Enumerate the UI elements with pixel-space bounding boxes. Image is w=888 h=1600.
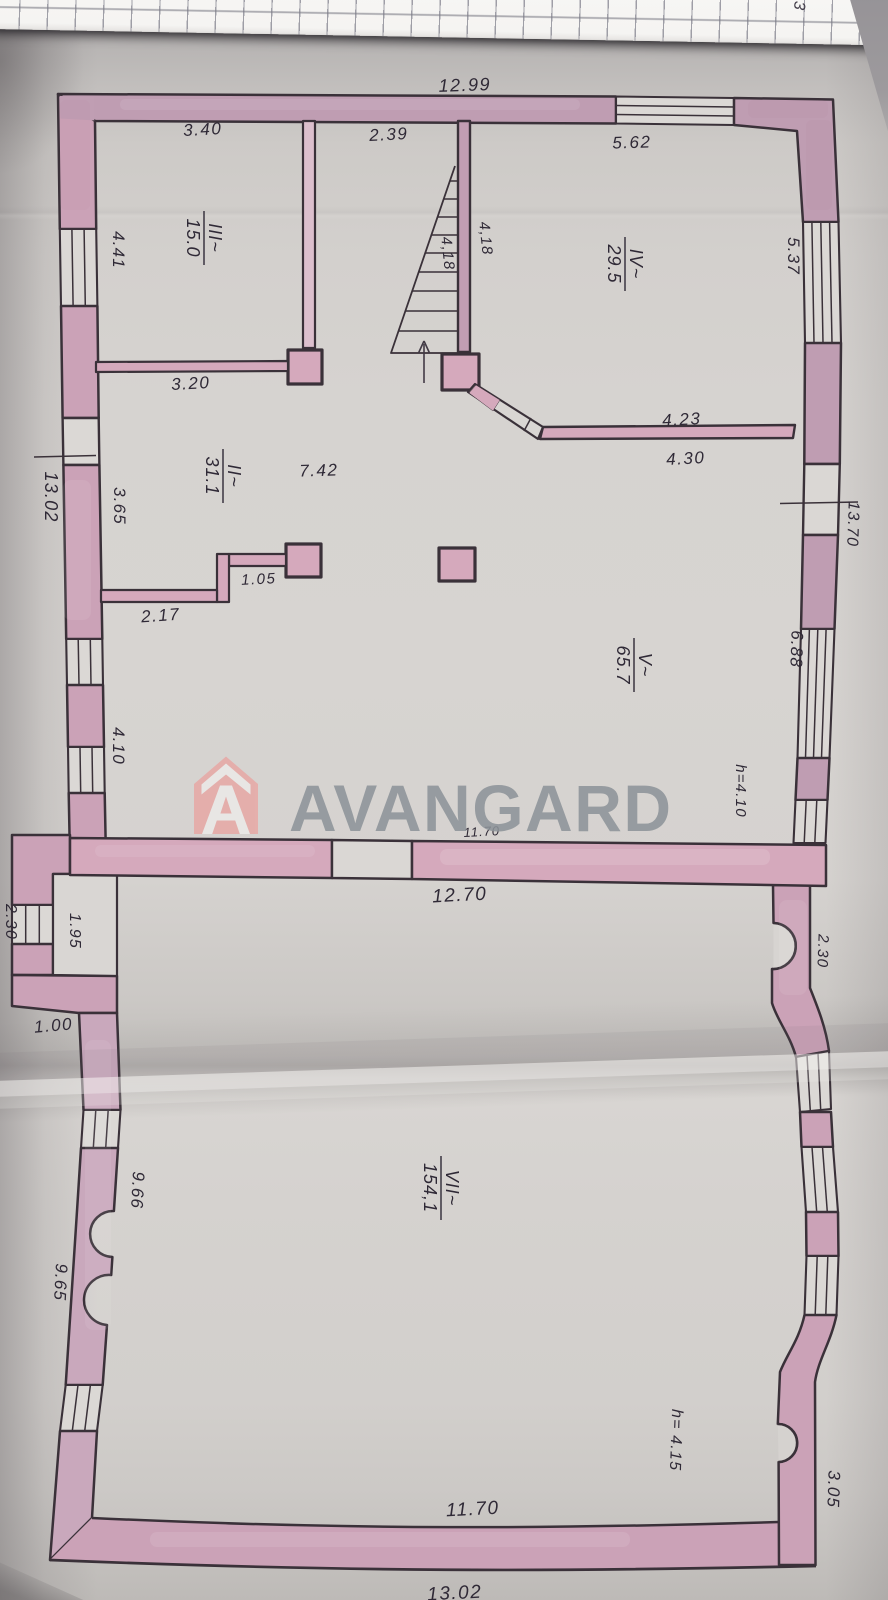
svg-text:AVANGARD: AVANGARD — [289, 771, 673, 845]
